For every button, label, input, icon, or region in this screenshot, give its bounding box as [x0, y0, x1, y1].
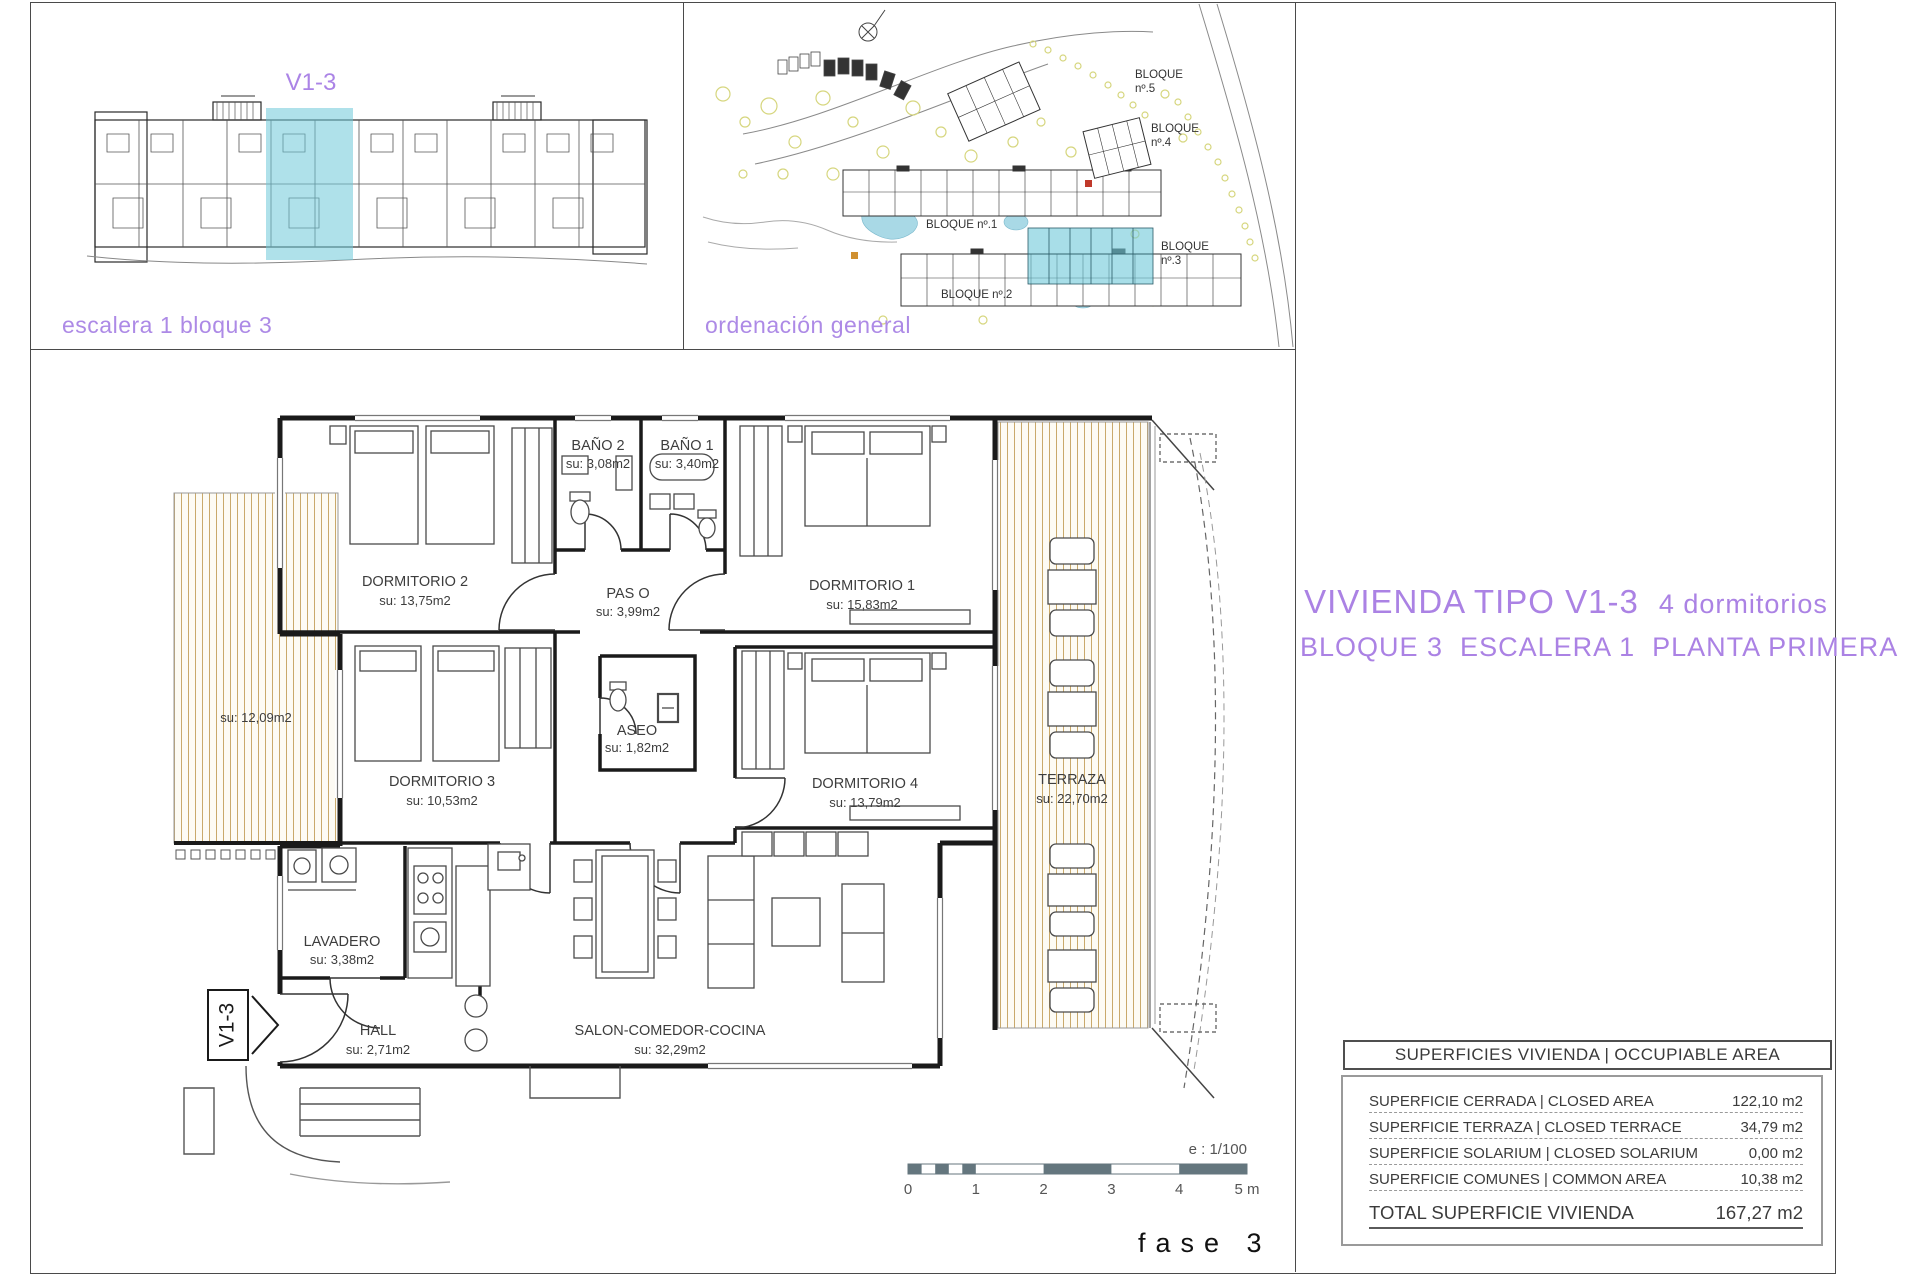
svg-text:su: 12,09m2: su: 12,09m2 [220, 710, 292, 725]
north-arrow-icon [859, 10, 885, 41]
svg-text:su: 1,82m2: su: 1,82m2 [605, 740, 669, 755]
site-bloque-5 [948, 62, 1040, 141]
svg-text:BAÑO 2: BAÑO 2 [571, 437, 624, 454]
plan-sheet: V1-3 escalera 1 bloque 3 [0, 0, 1920, 1280]
bloque4-label-1: BLOQUE [1151, 123, 1199, 135]
table-row: SUPERFICIE SOLARIUM | CLOSED SOLARIUM 0,… [1369, 1141, 1803, 1165]
total-label: TOTAL SUPERFICIE VIVIENDA [1369, 1202, 1634, 1224]
row-label: SUPERFICIE TERRAZA | CLOSED TERRACE [1369, 1119, 1682, 1136]
bloque3-label-2: nº.3 [1161, 255, 1181, 267]
svg-text:su: 3,08m2: su: 3,08m2 [566, 456, 630, 471]
scale-bar-segments [908, 1164, 1247, 1174]
row-value: 34,79 m2 [1740, 1119, 1803, 1136]
svg-text:DORMITORIO 1: DORMITORIO 1 [809, 578, 915, 594]
table-row: SUPERFICIE TERRAZA | CLOSED TERRACE 34,7… [1369, 1115, 1803, 1139]
furniture [288, 426, 1096, 1051]
site-accent-2 [1085, 180, 1092, 187]
row-value: 122,10 m2 [1732, 1093, 1803, 1110]
locator-unit-label: V1-3 [286, 69, 337, 96]
svg-text:su: 13,79m2: su: 13,79m2 [829, 795, 901, 810]
bloque5-label-2: nº.5 [1135, 83, 1155, 95]
svg-text:HALL: HALL [360, 1023, 396, 1039]
areas-table: SUPERFICIE CERRADA | CLOSED AREA 122,10 … [1341, 1075, 1823, 1246]
svg-text:5 m: 5 m [1234, 1181, 1259, 1198]
svg-text:TERRAZA: TERRAZA [1038, 772, 1106, 788]
terrace-left [174, 493, 338, 859]
scale-bar: e : 1/100 0 1 2 3 4 5 m [895, 1132, 1275, 1212]
svg-text:PAS O: PAS O [606, 586, 649, 602]
site-plan: BLOQUE nº.1 BLOQUE nº.2 BLOQUE nº.3 BLOQ… [683, 2, 1295, 349]
total-value: 167,27 m2 [1716, 1202, 1803, 1224]
svg-text:su: 2,71m2: su: 2,71m2 [346, 1042, 410, 1057]
scale-ticks: 0 1 2 3 4 5 m [904, 1181, 1260, 1198]
svg-text:3: 3 [1107, 1181, 1115, 1198]
exterior-stairs [184, 1066, 620, 1184]
locator-caption: escalera 1 bloque 3 [62, 312, 272, 339]
bloque3-label-1: BLOQUE [1161, 241, 1209, 253]
svg-text:BAÑO 1: BAÑO 1 [660, 437, 713, 454]
bloque5-label-1: BLOQUE [1135, 69, 1183, 81]
row-value: 0,00 m2 [1749, 1145, 1803, 1162]
entry-tag-label: V1-3 [216, 1003, 239, 1047]
site-bloque-4 [1083, 118, 1151, 179]
svg-text:ASEO: ASEO [617, 723, 657, 739]
page-title: VIVIENDA TIPO V1-3 [1304, 583, 1639, 620]
panel-divider-horizontal [30, 349, 1295, 350]
floor-plan: V1-3 BAÑO 2 su: 3,08m2 BAÑO 1 su: 3,40m2… [150, 398, 1280, 1198]
svg-text:1: 1 [972, 1181, 980, 1198]
unit-locator-plan: V1-3 [35, 2, 683, 349]
row-label: SUPERFICIE SOLARIUM | CLOSED SOLARIUM [1369, 1145, 1698, 1162]
svg-text:DORMITORIO 3: DORMITORIO 3 [389, 774, 495, 790]
svg-text:DORMITORIO 2: DORMITORIO 2 [362, 574, 468, 590]
bloque2-label: BLOQUE nº.2 [941, 289, 1012, 301]
svg-text:su: 13,75m2: su: 13,75m2 [379, 593, 451, 608]
svg-text:0: 0 [904, 1181, 912, 1198]
svg-text:su: 3,99m2: su: 3,99m2 [596, 604, 660, 619]
locator-building-strip [95, 102, 647, 262]
row-label: SUPERFICIE COMUNES | COMMON AREA [1369, 1171, 1666, 1188]
svg-text:su: 10,53m2: su: 10,53m2 [406, 793, 478, 808]
baluster-row [176, 850, 275, 859]
svg-text:SALON-COMEDOR-COCINA: SALON-COMEDOR-COCINA [575, 1023, 766, 1039]
page-subtitle: 4 dormitorios [1659, 589, 1828, 619]
site-parking [778, 52, 911, 100]
title-block: VIVIENDA TIPO V1-34 dormitorios BLOQUE 3… [1300, 583, 1832, 663]
svg-text:su: 22,70m2: su: 22,70m2 [1036, 791, 1108, 806]
locator-unit-lines [95, 120, 645, 247]
table-total-row: TOTAL SUPERFICIE VIVIENDA 167,27 m2 [1369, 1193, 1803, 1229]
bloque1-label: BLOQUE nº.1 [926, 219, 997, 231]
row-label: SUPERFICIE CERRADA | CLOSED AREA [1369, 1093, 1654, 1110]
locator-ground-line [87, 256, 647, 264]
entry-tag: V1-3 [208, 990, 278, 1060]
svg-text:su: 3,38m2: su: 3,38m2 [310, 952, 374, 967]
svg-text:su: 3,40m2: su: 3,40m2 [655, 456, 719, 471]
svg-text:su: 15,83m2: su: 15,83m2 [826, 597, 898, 612]
svg-text:4: 4 [1175, 1181, 1183, 1198]
phase-label: fase 3 [1138, 1228, 1272, 1259]
bloque4-label-2: nº.4 [1151, 137, 1172, 149]
stair-hatch [217, 102, 533, 120]
ac-unit-dashed-bottom [1160, 1004, 1216, 1032]
table-row: SUPERFICIE CERRADA | CLOSED AREA 122,10 … [1369, 1089, 1803, 1113]
site-accent-1 [851, 252, 858, 259]
site-bloque-3 [1028, 228, 1153, 284]
row-value: 10,38 m2 [1740, 1171, 1803, 1188]
svg-text:su: 32,29m2: su: 32,29m2 [634, 1042, 706, 1057]
svg-text:DORMITORIO 4: DORMITORIO 4 [812, 776, 918, 792]
site-caption: ordenación general [705, 312, 911, 339]
svg-text:2: 2 [1039, 1181, 1047, 1198]
svg-text:LAVADERO: LAVADERO [304, 934, 381, 950]
panel-divider-vertical-2 [1295, 2, 1296, 1272]
table-row: SUPERFICIE COMUNES | COMMON AREA 10,38 m… [1369, 1167, 1803, 1191]
scale-label: e : 1/100 [1189, 1141, 1247, 1158]
areas-table-header: SUPERFICIES VIVIENDA | OCCUPIABLE AREA [1343, 1040, 1832, 1070]
locator-highlight [266, 108, 353, 260]
entry-arrow-icon [252, 996, 278, 1054]
terrace-right [998, 420, 1224, 1098]
page-title-line2: BLOQUE 3 ESCALERA 1 PLANTA PRIMERA [1300, 632, 1832, 663]
